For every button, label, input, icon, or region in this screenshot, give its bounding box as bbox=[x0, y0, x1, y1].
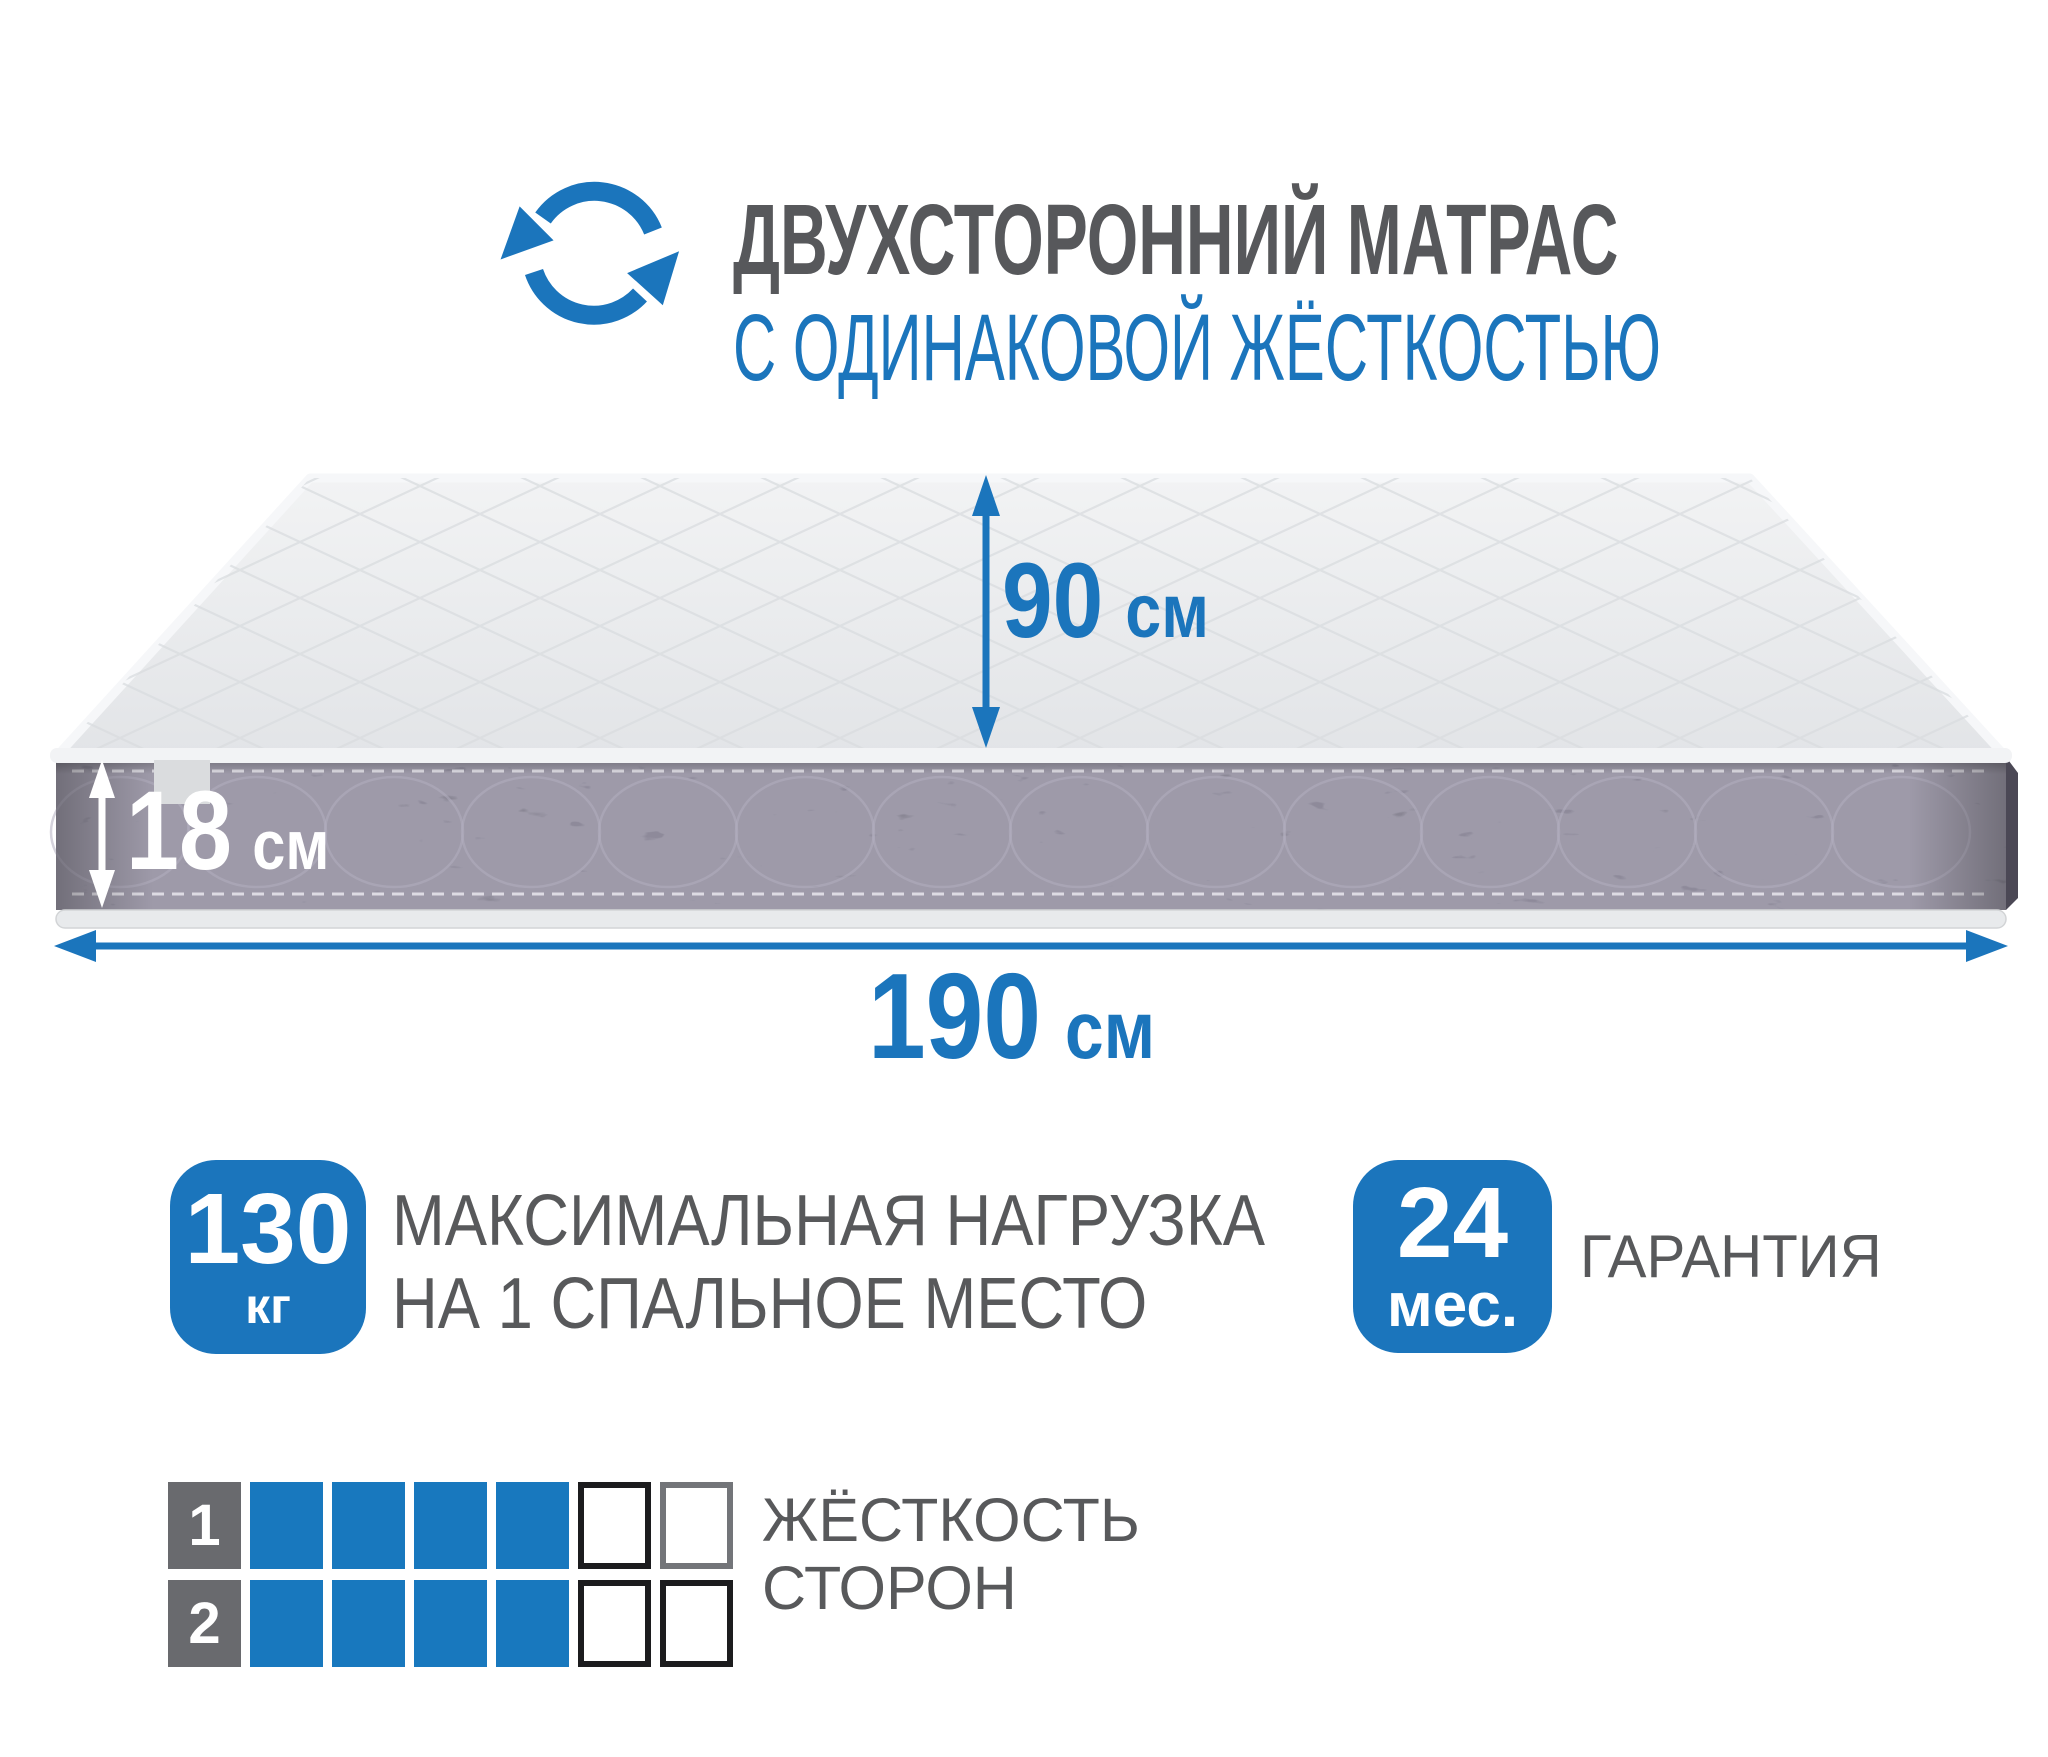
height-value: 18 bbox=[126, 766, 232, 895]
warranty-label: ГАРАНТИЯ bbox=[1580, 1222, 1882, 1292]
firmness-cell-empty bbox=[578, 1580, 651, 1667]
max-load-description-line1: МАКСИМАЛЬНАЯ НАГРУЗКА bbox=[392, 1180, 1265, 1263]
mattress-bottom-piping bbox=[56, 910, 2006, 928]
firmness-cell-filled bbox=[414, 1482, 487, 1569]
rotate-bottom-arc bbox=[534, 272, 640, 315]
width-value: 90 bbox=[1002, 538, 1103, 662]
length-value: 190 bbox=[868, 946, 1041, 1086]
length-unit: см bbox=[1065, 984, 1155, 1078]
firmness-cell-filled bbox=[332, 1482, 405, 1569]
height-unit: см bbox=[252, 805, 329, 885]
page-title: ДВУХСТОРОННИЙ МАТРАС bbox=[733, 186, 1618, 294]
firmness-cell-empty bbox=[578, 1482, 651, 1569]
max-load-value: 130 bbox=[185, 1183, 352, 1275]
firmness-cell-empty bbox=[660, 1580, 733, 1667]
mattress-side-band bbox=[51, 757, 2006, 910]
firmness-cell-empty bbox=[660, 1482, 733, 1569]
height-dimension-label: 18 см bbox=[126, 766, 329, 895]
rotate-top-arc bbox=[543, 191, 653, 231]
warranty-unit: мес. bbox=[1387, 1275, 1518, 1337]
warranty-badge: 24 мес. bbox=[1353, 1160, 1552, 1353]
width-dimension-label: 90 см bbox=[1002, 538, 1209, 662]
firmness-cell-filled bbox=[332, 1580, 405, 1667]
firmness-row: 1 bbox=[168, 1482, 733, 1569]
mattress-front-piping bbox=[50, 748, 2012, 763]
width-unit: см bbox=[1125, 568, 1209, 655]
firmness-cell-filled bbox=[496, 1482, 569, 1569]
firmness-label-line1: ЖЁСТКОСТЬ bbox=[762, 1490, 1140, 1551]
firmness-cell-filled bbox=[414, 1580, 487, 1667]
mattress-right-face bbox=[2006, 757, 2018, 910]
firmness-row: 2 bbox=[168, 1580, 733, 1667]
length-dimension-label: 190 см bbox=[868, 946, 1155, 1086]
rotate-arrows-icon bbox=[498, 168, 690, 336]
page-subtitle: С ОДИНАКОВОЙ ЖЁСТКОСТЬЮ bbox=[733, 297, 1661, 400]
firmness-cell-filled bbox=[496, 1580, 569, 1667]
firmness-rows: 12 bbox=[168, 1482, 733, 1678]
firmness-side-label: 1 bbox=[168, 1482, 241, 1569]
mattress-infographic: ДВУХСТОРОННИЙ МАТРАС С ОДИНАКОВОЙ ЖЁСТКО… bbox=[0, 0, 2048, 1757]
firmness-cell-filled bbox=[250, 1482, 323, 1569]
warranty-value: 24 bbox=[1397, 1177, 1508, 1269]
max-load-badge: 130 кг bbox=[170, 1160, 366, 1354]
max-load-description-line2: НА 1 СПАЛЬНОЕ МЕСТО bbox=[392, 1263, 1265, 1346]
firmness-cell-filled bbox=[250, 1580, 323, 1667]
max-load-unit: кг bbox=[245, 1281, 291, 1331]
max-load-description: МАКСИМАЛЬНАЯ НАГРУЗКА НА 1 СПАЛЬНОЕ МЕСТ… bbox=[392, 1180, 1265, 1346]
firmness-label-line2: СТОРОН bbox=[762, 1558, 1017, 1619]
firmness-side-label: 2 bbox=[168, 1580, 241, 1667]
